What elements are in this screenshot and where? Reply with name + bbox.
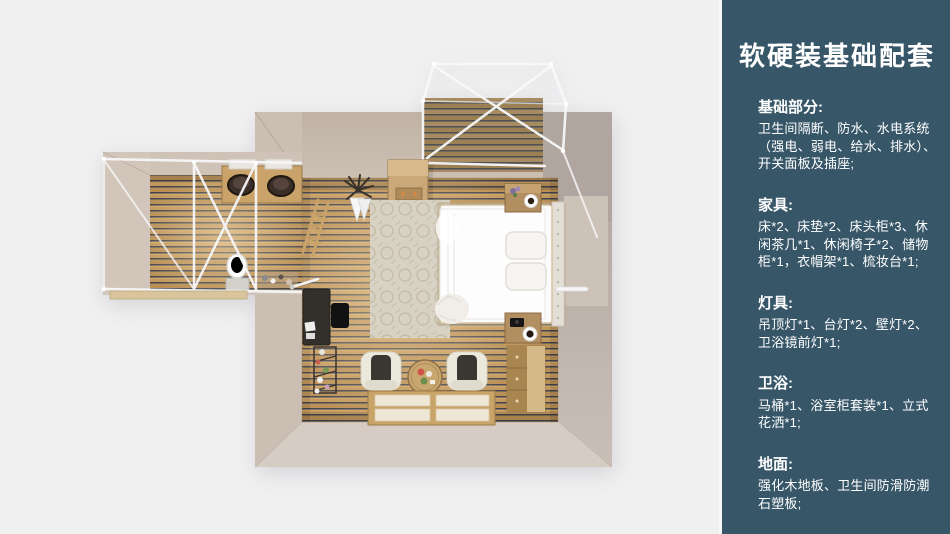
spec-section-body: 强化木地板、卫生间防滑防潮石塑板; <box>758 477 938 512</box>
spec-section-body: 马桶*1、浴室柜套装*1、立式花洒*1; <box>758 397 938 432</box>
spec-section-body: 卫生间隔断、防水、水电系统（强电、弱电、给水、排水）、开关面板及插座; <box>758 120 938 173</box>
fuzzy-throw <box>435 294 469 324</box>
spec-section-heading: 灯具: <box>758 294 938 314</box>
spec-section-heading: 地面: <box>758 455 938 475</box>
pillow <box>506 232 546 259</box>
spec-section-floor: 地面: 强化木地板、卫生间防滑防潮石塑板; <box>758 455 938 513</box>
spec-sidebar: 软硬装基础配套 基础部分: 卫生间隔断、防水、水电系统（强电、弱电、给水、排水）… <box>722 0 950 534</box>
pillow <box>506 263 546 290</box>
nightstand-bottom <box>505 313 541 343</box>
spec-sections: 基础部分: 卫生间隔断、防水、水电系统（强电、弱电、给水、排水）、开关面板及插座… <box>758 98 938 513</box>
nightstand-top <box>505 184 541 212</box>
wardrobe <box>388 160 433 202</box>
spec-section-heading: 基础部分: <box>758 98 938 118</box>
floorplan-render <box>0 0 722 534</box>
desk-chair <box>331 303 349 328</box>
spec-section-body: 床*2、床垫*2、床头柜*3、休闲茶几*1、休闲椅子*2、储物柜*1，衣帽架*1… <box>758 218 938 271</box>
bathroom-vanity <box>222 159 302 203</box>
armchair-left <box>359 352 403 393</box>
spec-section-body: 吊顶灯*1、台灯*2、壁灯*2、卫浴镜前灯*1; <box>758 316 938 351</box>
page: 软硬装基础配套 基础部分: 卫生间隔断、防水、水电系统（强电、弱电、给水、排水）… <box>0 0 950 534</box>
spec-section-furniture: 家具: 床*2、床垫*2、床头柜*3、休闲茶几*1、休闲椅子*2、储物柜*1，衣… <box>758 196 938 271</box>
spec-section-bathroom: 卫浴: 马桶*1、浴室柜套装*1、立式花洒*1; <box>758 374 938 432</box>
sheer-canopy <box>436 212 458 244</box>
spec-section-heading: 卫浴: <box>758 374 938 394</box>
toilet <box>226 254 249 291</box>
sidebar-title: 软硬装基础配套 <box>739 42 936 72</box>
headboard <box>552 202 564 326</box>
bathroom <box>102 152 302 299</box>
armchair-right <box>445 352 489 393</box>
threshold-board <box>110 291 247 299</box>
spec-section-heading: 家具: <box>758 196 938 216</box>
coffee-table <box>408 360 442 394</box>
wall-lamp <box>556 287 588 291</box>
mirror-right <box>265 159 292 169</box>
double-bed <box>435 202 566 326</box>
spec-section-basic: 基础部分: 卫生间隔断、防水、水电系统（强电、弱电、给水、排水）、开关面板及插座… <box>758 98 938 173</box>
floor-mat <box>368 391 495 425</box>
spec-section-lighting: 灯具: 吊顶灯*1、台灯*2、壁灯*2、卫浴镜前灯*1; <box>758 294 938 352</box>
dresser <box>507 346 545 412</box>
floorplan-panel <box>0 0 722 534</box>
